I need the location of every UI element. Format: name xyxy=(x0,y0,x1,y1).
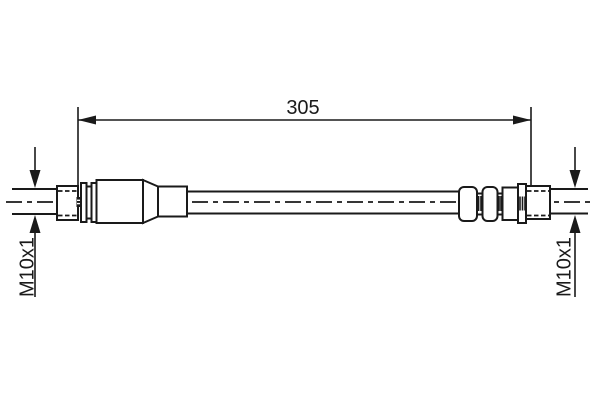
left-thread-label: M10x1 xyxy=(17,237,39,297)
right-thread-arrow-down-icon xyxy=(570,170,581,188)
right-crimp-sleeve xyxy=(503,188,519,221)
dimension-arrow-right-icon xyxy=(513,116,531,125)
right-bellows-bulge-2 xyxy=(483,187,498,221)
left-sleeve-taper xyxy=(143,180,158,223)
left-crimp-sleeve xyxy=(97,180,144,223)
left-thread-arrow-down-icon xyxy=(30,170,41,188)
left-thread-arrow-up-icon xyxy=(30,215,41,233)
right-bellows-bulge-1 xyxy=(459,187,477,221)
brake-hose-diagram: 305 xyxy=(0,0,600,400)
left-thread-callout: M10x1 xyxy=(17,147,41,297)
right-seal-hatch xyxy=(520,197,525,211)
technical-drawing-canvas: 305 xyxy=(0,0,600,400)
left-sleeve-neck xyxy=(158,187,187,217)
dimension-value: 305 xyxy=(286,97,319,119)
right-fitting xyxy=(459,184,588,223)
dimension-arrow-left-icon xyxy=(78,116,96,125)
right-thread-label: M10x1 xyxy=(554,237,576,297)
right-thread-callout: M10x1 xyxy=(554,147,581,297)
overall-length-dimension: 305 xyxy=(78,97,531,186)
right-thread-arrow-up-icon xyxy=(570,215,581,233)
